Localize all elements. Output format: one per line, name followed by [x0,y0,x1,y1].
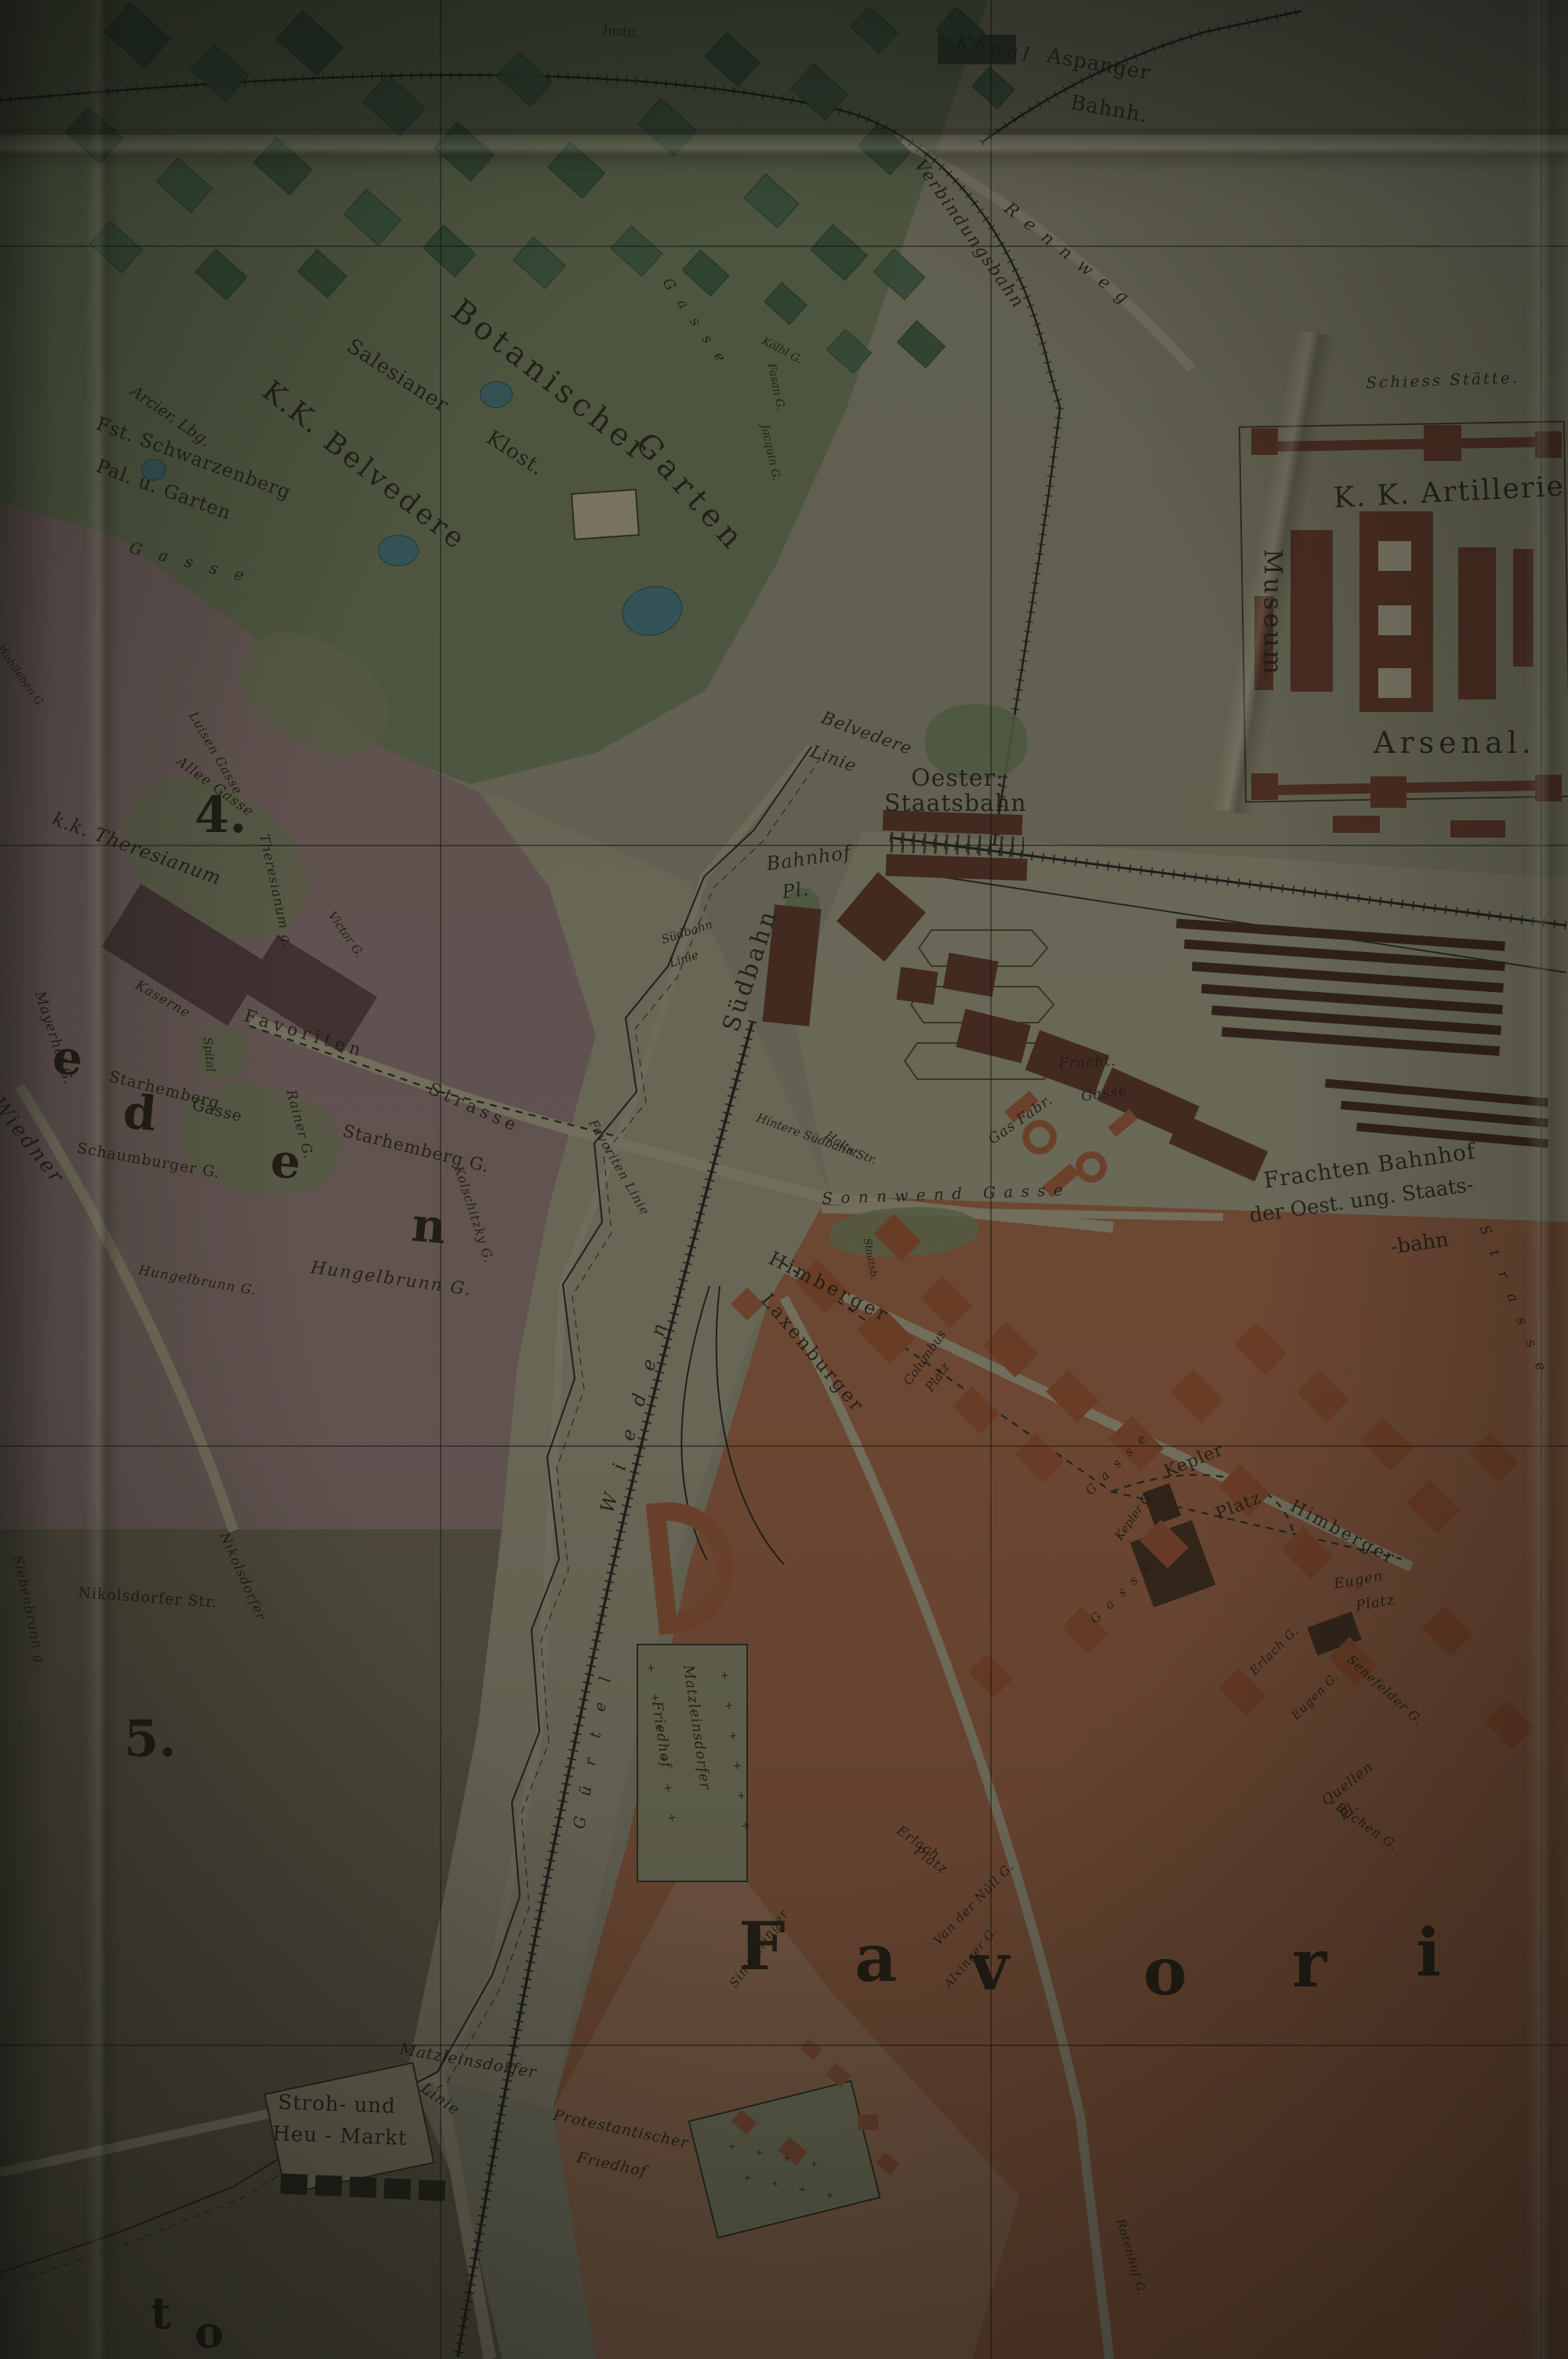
falz-v1 [85,0,121,2359]
rail-branch-2 [717,1286,784,1565]
gaswerk-kessel-2 [1076,1151,1107,1183]
label-a: a [855,1925,897,1991]
arsenal-sued-2 [1450,820,1505,838]
arsenal-hof-1 [1378,541,1411,571]
label-e: e [51,1034,85,1083]
teich-botanischer [480,381,513,408]
teich-schwarzenberg [378,535,419,566]
label-r: r [1292,1931,1327,1997]
suedbahnhof-3 [896,967,938,1005]
vienna-map-photo: KanalAspangerBahnh.VerbindungsbahnR e n … [0,0,1568,2359]
label-heu-markt: Heu - Markt [272,2124,408,2149]
label-o: o [1143,1939,1187,2005]
heumarkt-stand-2 [315,2175,343,2196]
label-instit: Instit. [602,24,641,40]
label-i: i [1416,1920,1441,1986]
heumarkt-stand-3 [350,2176,377,2197]
schatten-oben [0,0,1568,135]
gridline-h1 [0,245,1568,247]
falz-v2 [1526,0,1568,2359]
gridline-h2 [0,845,1568,846]
label-f: F [739,1914,786,1979]
label-fracht: Fracht. [1058,1054,1116,1071]
road-rennweg [902,141,1192,369]
arsenal-turm-2 [1424,425,1461,461]
label-d: d [122,1089,158,1138]
label-pl: Pl. [781,879,810,902]
arsenal-hof-2 [1378,605,1411,635]
arsenal-hof-3 [1378,668,1411,698]
heumarkt-stand-5 [419,2179,446,2201]
heumarkt-stand-4 [384,2178,412,2199]
heumarkt-stand-1 [281,2173,308,2194]
label-staatsbahn: Staatsbahn [884,792,1027,816]
label-arsenal: Arsenal. [1374,728,1536,758]
label-5: 5. [124,1714,176,1765]
gridline-v1 [440,0,441,2359]
label-oester: Oester: [911,767,1004,791]
label-spital: Spital [201,1037,216,1073]
gridline-h4 [0,2045,1568,2046]
arsenal-bturm-2 [1370,776,1406,808]
label-schiess-stätte: Schiess Stätte. [1366,369,1519,391]
fav-haus-4 [858,2114,878,2130]
label-museum: Museum [1261,549,1286,678]
label-t: t [151,2292,171,2335]
label-e: e [269,1137,303,1187]
label-stroh-und: Stroh- und [278,2092,396,2117]
falz-h1 [0,129,1568,171]
label-o: o [194,2310,223,2354]
belvedere-palais [571,489,640,540]
label-v: v [971,1934,1009,2000]
label-n: n [410,1201,448,1252]
gaswerk-kessel-1 [1022,1120,1057,1154]
arsenal-ost-1 [1458,547,1496,700]
arsenal-sued-1 [1333,816,1380,833]
gridline-h3 [0,1445,1568,1447]
